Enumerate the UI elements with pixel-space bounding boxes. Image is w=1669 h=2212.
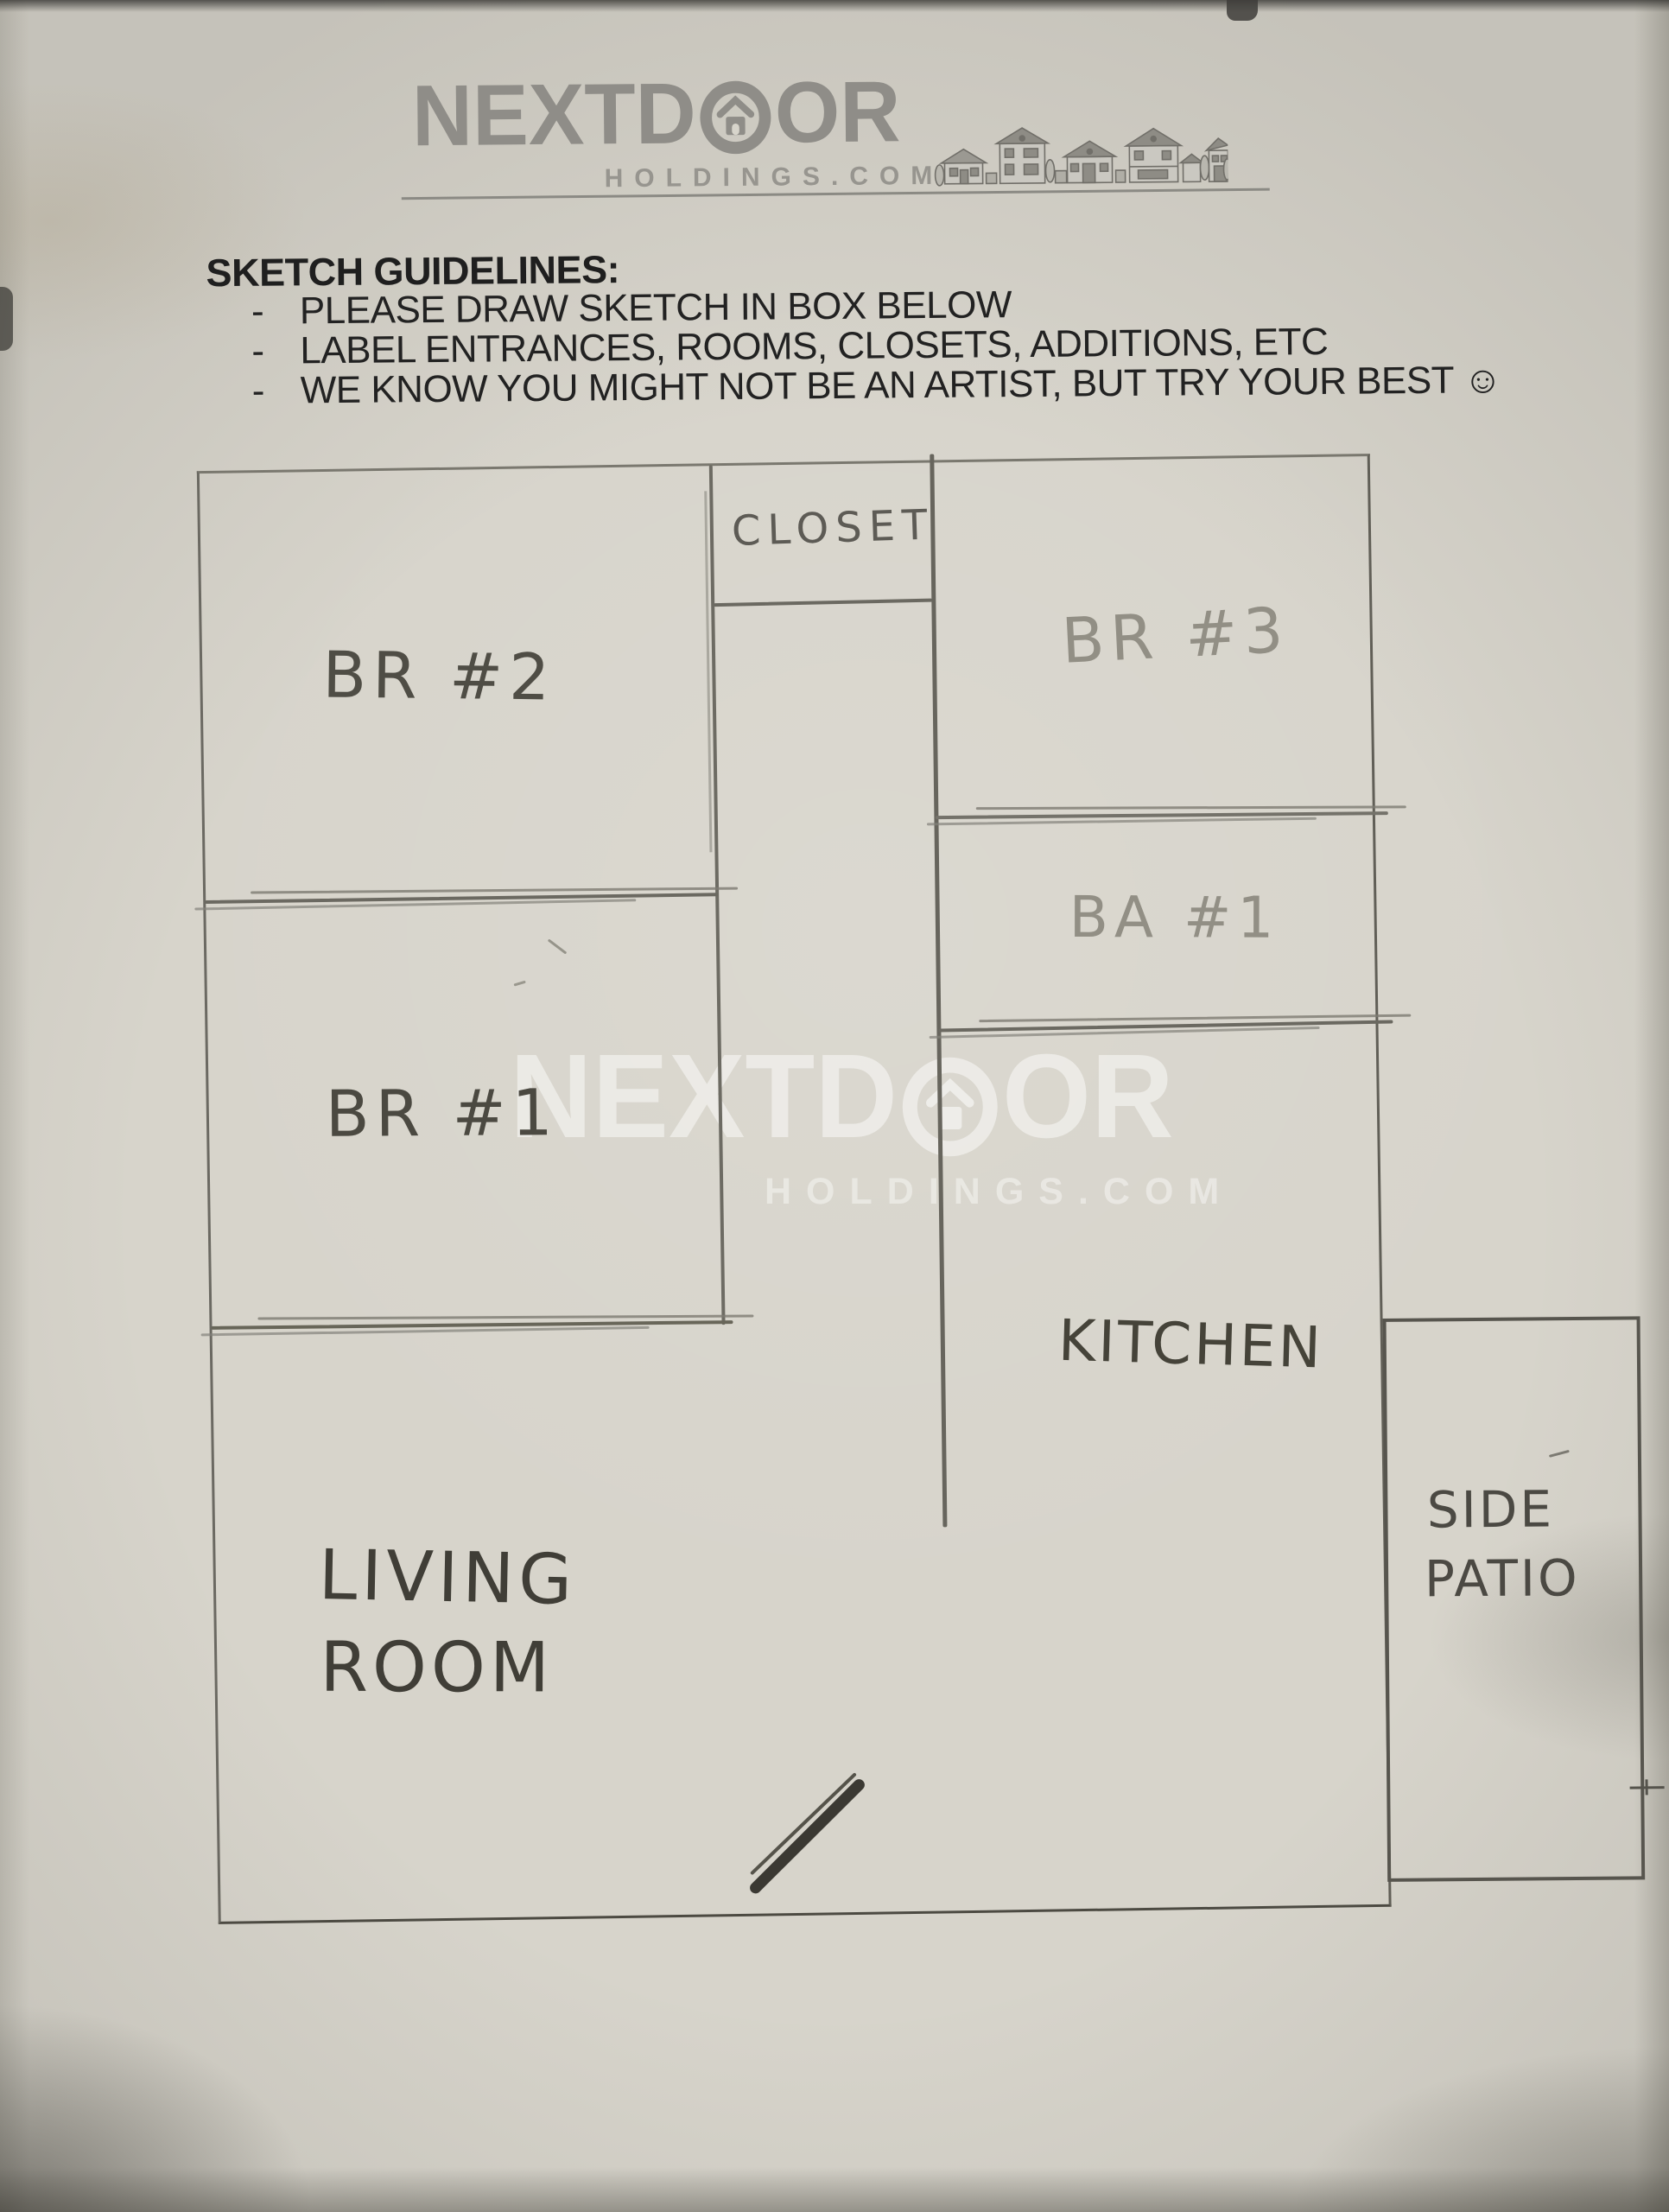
room-label-br3: BR #3 <box>1060 599 1291 672</box>
room-label-ba1: BA #1 <box>1069 889 1280 947</box>
room-label-closet: CLOSET <box>731 504 935 552</box>
room-label-living-room-line2: ROOM <box>320 1633 554 1703</box>
room-label-side-patio-line2: PATIO <box>1425 1553 1580 1604</box>
room-label-living-room-line1: LIVING <box>318 1541 577 1615</box>
room-label-kitchen: KITCHEN <box>1057 1313 1324 1377</box>
photographed-sketch-form: NEXTD OR HOLDINGS.COM NEXTD <box>0 0 1669 2212</box>
room-label-br2: BR #2 <box>322 643 556 709</box>
room-label-side-patio-line1: SIDE <box>1427 1484 1555 1535</box>
room-label-br1: BR #1 <box>326 1081 559 1147</box>
patio-tick-mark <box>1630 1786 1665 1789</box>
floor-plan-sketch: CLOSET BR #2 BR #3 BA #1 BR #1 KITCHEN L… <box>0 0 1669 2212</box>
